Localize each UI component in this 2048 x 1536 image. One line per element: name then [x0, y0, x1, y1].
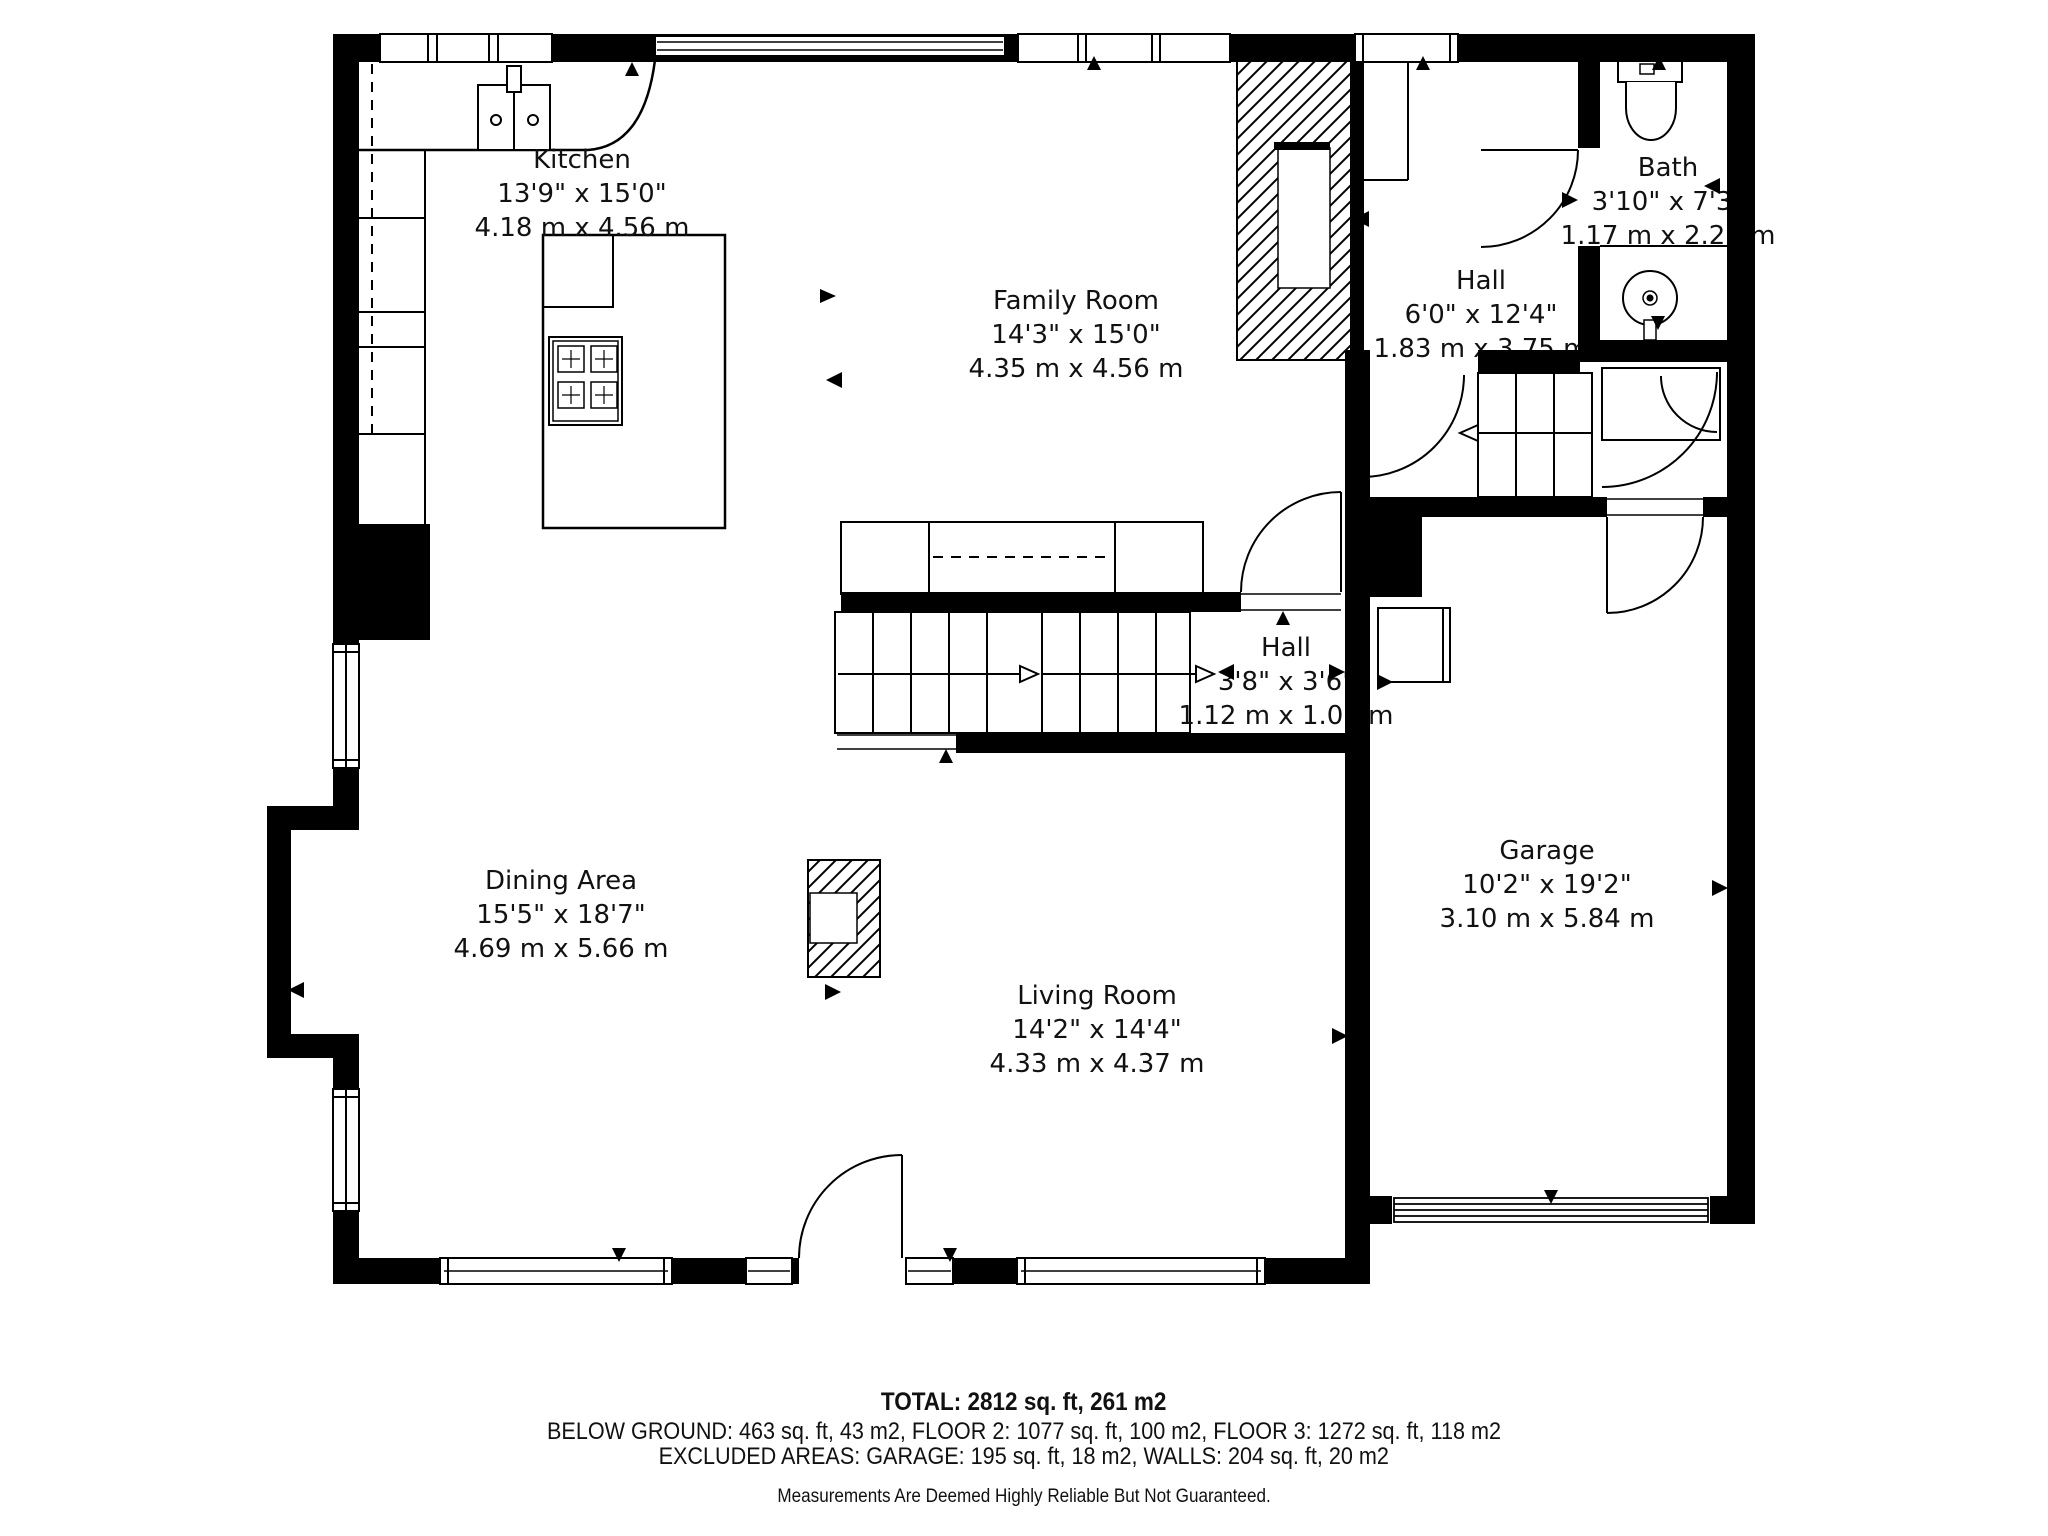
- window-bottom-c: [906, 1258, 953, 1284]
- room-dims-m: 1.12 m x 1.07 m: [1179, 699, 1394, 733]
- kitchen-cabinets: [333, 64, 425, 524]
- room-label-garage: Garage 10'2" x 19'2" 3.10 m x 5.84 m: [1440, 834, 1655, 936]
- room-dims-ft: 14'2" x 14'4": [990, 1013, 1205, 1047]
- room-dims-m: 4.69 m x 5.66 m: [454, 932, 669, 966]
- kitchen-island: [543, 235, 725, 528]
- room-label-hall-upper: Hall 6'0" x 12'4" 1.83 m x 3.75 m: [1374, 264, 1589, 366]
- room-dims-m: 4.35 m x 4.56 m: [969, 352, 1184, 386]
- garage-door: [1394, 1198, 1708, 1222]
- hall-nook: [1364, 62, 1408, 180]
- room-dims-ft: 10'2" x 19'2": [1440, 868, 1655, 902]
- room-name: Hall: [1374, 264, 1589, 298]
- floor-plan-page: Kitchen 13'9" x 15'0" 4.18 m x 4.56 m Fa…: [0, 0, 2048, 1536]
- family-room-cabinets: [841, 522, 1203, 594]
- room-dims-ft: 14'3" x 15'0": [969, 318, 1184, 352]
- staircase-up: [1460, 373, 1592, 497]
- window-left-upper: [333, 644, 359, 768]
- room-name: Family Room: [969, 284, 1184, 318]
- door-entry-to-garage: [1607, 517, 1703, 613]
- fireplace: [808, 860, 880, 977]
- window-bottom-b: [746, 1258, 792, 1284]
- window-hall-top: [1355, 34, 1458, 62]
- door-family-to-hall: [1241, 492, 1341, 592]
- footer-excluded-text: EXCLUDED AREAS: GARAGE: 195 sq. ft, 18 m…: [659, 1443, 1389, 1471]
- footer-total-text: TOTAL: 2812 sq. ft, 261 m2: [881, 1388, 1167, 1417]
- footer-disclaimer: Measurements Are Deemed Highly Reliable …: [0, 1486, 2048, 1508]
- bath-sink-icon: [1600, 246, 1727, 340]
- footer-floors: BELOW GROUND: 463 sq. ft, 43 m2, FLOOR 2…: [0, 1418, 2048, 1446]
- kitchen-sink-icon: [478, 66, 550, 150]
- room-name: Bath: [1561, 151, 1776, 185]
- room-label-family-room: Family Room 14'3" x 15'0" 4.35 m x 4.56 …: [969, 284, 1184, 386]
- room-dims-m: 4.18 m x 4.56 m: [475, 211, 690, 245]
- footer-excluded: EXCLUDED AREAS: GARAGE: 195 sq. ft, 18 m…: [0, 1443, 2048, 1471]
- window-kitchen-top: [380, 34, 552, 62]
- room-label-dining-area: Dining Area 15'5" x 18'7" 4.69 m x 5.66 …: [454, 864, 669, 966]
- footer-total: TOTAL: 2812 sq. ft, 261 m2: [0, 1388, 2048, 1417]
- room-label-living-room: Living Room 14'2" x 14'4" 4.33 m x 4.37 …: [990, 979, 1205, 1081]
- room-name: Hall: [1179, 631, 1394, 665]
- window-band-top: [655, 36, 1005, 56]
- room-dims-m: 1.83 m x 3.75 m: [1374, 332, 1589, 366]
- room-dims-m: 1.17 m x 2.21 m: [1561, 219, 1776, 253]
- room-dims-ft: 6'0" x 12'4": [1374, 298, 1589, 332]
- kitchen-counter: [359, 60, 655, 150]
- room-dims-m: 3.10 m x 5.84 m: [1440, 902, 1655, 936]
- room-name: Kitchen: [475, 143, 690, 177]
- room-label-hall-lower: Hall 3'8" x 3'6" 1.12 m x 1.07 m: [1179, 631, 1394, 733]
- window-bottom-a: [440, 1258, 672, 1284]
- room-dims-ft: 15'5" x 18'7": [454, 898, 669, 932]
- window-family-top: [1018, 34, 1230, 62]
- cooktop-icon: [549, 337, 622, 425]
- room-name: Dining Area: [454, 864, 669, 898]
- room-dims-ft: 13'9" x 15'0": [475, 177, 690, 211]
- window-left-lower: [333, 1089, 359, 1211]
- toilet-icon: [1618, 58, 1682, 140]
- room-label-bath: Bath 3'10" x 7'3" 1.17 m x 2.21 m: [1561, 151, 1776, 253]
- footer-floors-text: BELOW GROUND: 463 sq. ft, 43 m2, FLOOR 2…: [547, 1418, 1501, 1446]
- door-hall-to-entry: [1362, 375, 1464, 477]
- door-living-room: [799, 1155, 902, 1258]
- room-name: Garage: [1440, 834, 1655, 868]
- room-name: Living Room: [990, 979, 1205, 1013]
- room-label-kitchen: Kitchen 13'9" x 15'0" 4.18 m x 4.56 m: [475, 143, 690, 245]
- footer-disclaimer-text: Measurements Are Deemed Highly Reliable …: [777, 1486, 1270, 1508]
- room-dims-m: 4.33 m x 4.37 m: [990, 1047, 1205, 1081]
- staircase-down: [835, 612, 1214, 733]
- chimney: [1237, 58, 1351, 360]
- window-bottom-d: [1017, 1258, 1265, 1284]
- entry-closet: [1602, 368, 1720, 487]
- room-dims-ft: 3'8" x 3'6": [1179, 665, 1394, 699]
- room-dims-ft: 3'10" x 7'3": [1561, 185, 1776, 219]
